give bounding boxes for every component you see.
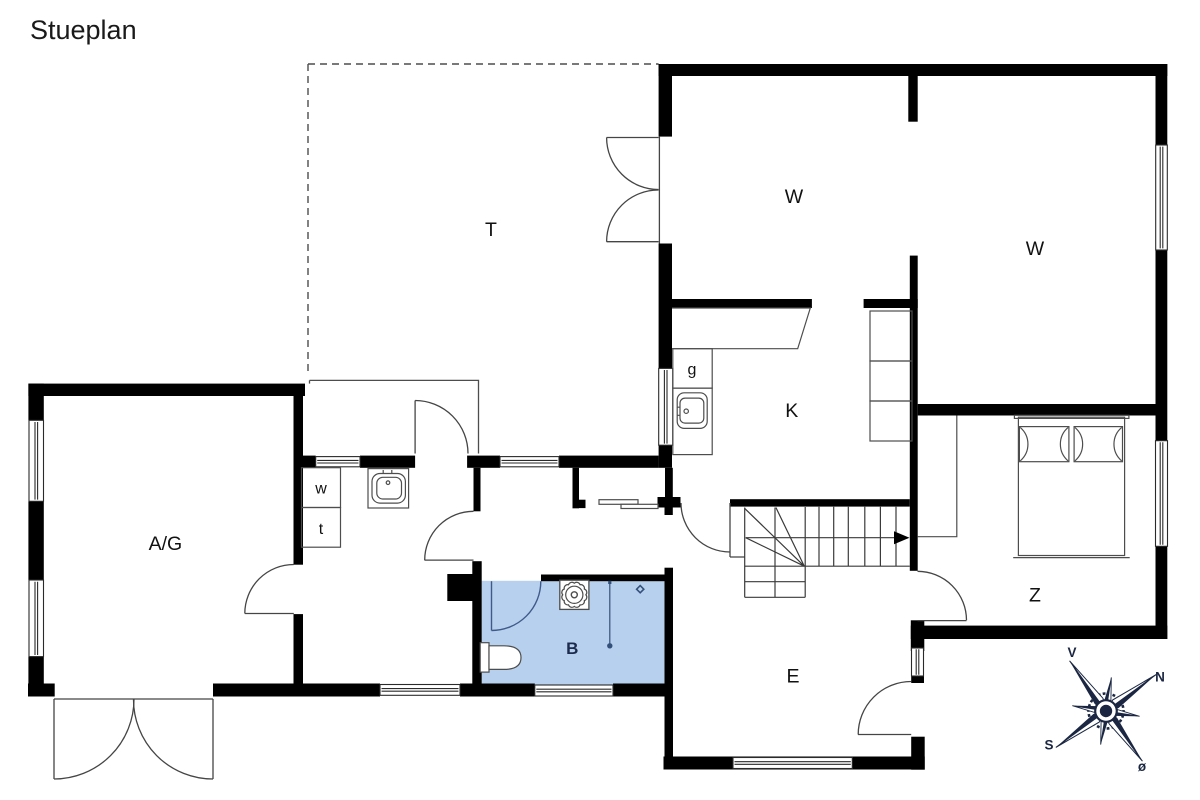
svg-text:A/G: A/G	[149, 533, 183, 555]
svg-text:E: E	[786, 666, 799, 688]
svg-text:K: K	[785, 400, 798, 422]
svg-text:W: W	[1026, 238, 1045, 260]
svg-text:Z: Z	[1029, 585, 1041, 607]
svg-text:w: w	[314, 481, 327, 498]
svg-text:Stueplan: Stueplan	[30, 15, 137, 45]
svg-text:S: S	[1044, 738, 1053, 753]
svg-text:T: T	[485, 219, 497, 241]
svg-text:ø: ø	[1138, 759, 1147, 774]
svg-text:V: V	[1067, 645, 1076, 660]
svg-text:g: g	[688, 362, 697, 379]
svg-text:t: t	[319, 521, 324, 538]
svg-text:B: B	[566, 639, 578, 658]
svg-text:W: W	[785, 186, 804, 208]
svg-text:N: N	[1155, 670, 1165, 685]
